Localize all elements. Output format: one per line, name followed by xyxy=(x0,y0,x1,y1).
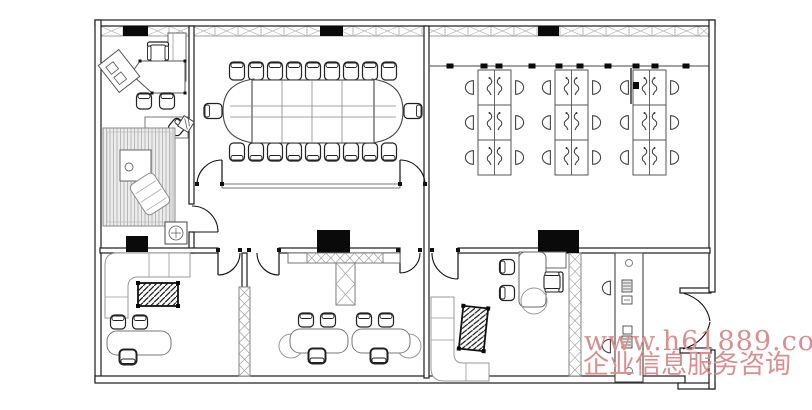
door-posts xyxy=(195,182,199,186)
conference-chair xyxy=(325,143,340,161)
column xyxy=(317,230,350,253)
manager-desk xyxy=(519,252,546,307)
rail-tick xyxy=(529,64,536,69)
coffee-table xyxy=(136,281,180,308)
layer-room-c xyxy=(431,252,566,381)
workstation-chair xyxy=(671,116,679,130)
wall-main-c xyxy=(458,248,710,253)
workstation-chair xyxy=(593,151,601,165)
chair xyxy=(371,349,388,364)
watermark-caption: 企业信息服务咨询 xyxy=(583,352,791,378)
wall-left xyxy=(95,20,101,382)
layer-room-a xyxy=(105,253,190,365)
office-chair xyxy=(148,42,169,61)
conference-chair-end xyxy=(404,104,422,119)
conference-chair xyxy=(363,143,378,161)
workstation-chair xyxy=(465,116,473,130)
conference-chair-end xyxy=(204,104,222,119)
conference-glass-wall xyxy=(222,184,400,188)
wall-conference-right xyxy=(424,26,429,378)
column xyxy=(123,26,148,36)
chair xyxy=(379,313,394,327)
door-posts xyxy=(396,248,400,252)
chair xyxy=(133,315,148,329)
rail-tick xyxy=(556,64,563,69)
workstation-chair xyxy=(671,81,679,95)
rail-tick xyxy=(652,64,659,69)
workstation-chair xyxy=(620,81,628,95)
workstation-chair xyxy=(620,151,628,165)
conference-chair xyxy=(249,62,264,80)
manager-chair xyxy=(544,272,563,292)
table xyxy=(107,331,171,355)
workstation-chair xyxy=(542,151,550,165)
chair xyxy=(500,286,515,301)
conference-chair xyxy=(325,62,340,80)
rail-tick xyxy=(605,64,612,69)
conference-chair xyxy=(249,143,264,161)
conference-chair xyxy=(344,143,359,161)
column xyxy=(538,26,559,36)
door-arc-conference-right xyxy=(400,160,425,185)
rail-tick xyxy=(496,64,503,69)
workstation-chair xyxy=(671,151,679,165)
door-posts xyxy=(216,248,220,252)
guest-chair xyxy=(137,93,152,109)
conference-table xyxy=(252,80,374,143)
rail-tick xyxy=(633,64,640,69)
workstation-chair xyxy=(465,151,473,165)
column xyxy=(320,26,343,36)
conference-chair xyxy=(287,62,302,80)
conference-chair xyxy=(382,143,397,161)
wall-office-right-upper xyxy=(189,26,194,204)
door-posts xyxy=(398,182,402,186)
door-arc-room-b-right xyxy=(400,253,420,273)
entry-door-leaf-top xyxy=(683,293,710,321)
workstation-chair xyxy=(465,81,473,95)
chair xyxy=(120,350,137,365)
divider-room-ab xyxy=(239,287,250,376)
conference-chair xyxy=(230,143,245,161)
wall-main-a xyxy=(100,248,218,253)
layer-executive-office xyxy=(98,33,194,244)
conference-chair xyxy=(306,143,321,161)
conference-chair xyxy=(363,62,378,80)
reception-chair xyxy=(602,281,610,295)
door-arc-room-a xyxy=(218,253,240,275)
desk-cluster xyxy=(542,70,600,175)
desk-cluster xyxy=(465,70,523,175)
door-posts xyxy=(456,248,460,252)
layer-open-office xyxy=(465,68,678,175)
entry-stub-top xyxy=(680,288,711,293)
workstation-chair xyxy=(516,151,524,165)
door-posts xyxy=(247,248,251,252)
file-cabinet xyxy=(98,50,139,93)
conference-table-end xyxy=(223,79,254,143)
divider-post xyxy=(242,253,247,288)
conference-chair xyxy=(287,143,302,161)
conference-table-end xyxy=(372,79,403,143)
door-posts xyxy=(277,248,281,252)
door-posts xyxy=(430,248,434,252)
chair xyxy=(357,313,372,327)
area-rug xyxy=(457,304,491,354)
chair xyxy=(299,313,314,327)
door-arc-office xyxy=(192,206,218,232)
conference-chair xyxy=(344,62,359,80)
conference-chair xyxy=(268,62,283,80)
floor-plan-canvas: www.h61889.com 企业信息服务咨询 xyxy=(0,0,812,410)
chair xyxy=(500,260,515,275)
desk-cluster xyxy=(620,70,678,175)
conference-chair xyxy=(268,143,283,161)
workstation-chair xyxy=(620,116,628,130)
door-posts xyxy=(220,182,224,186)
rail-tick xyxy=(447,64,454,69)
conference-chair xyxy=(382,62,397,80)
workstation-chair xyxy=(593,116,601,130)
door-arc-room-b-left xyxy=(257,253,279,275)
workstation-chair xyxy=(542,81,550,95)
door-arc-room-c xyxy=(432,253,458,279)
conference-chair xyxy=(306,62,321,80)
workstation-chair xyxy=(542,116,550,130)
workstation-chair xyxy=(593,81,601,95)
rail-tick xyxy=(577,64,584,69)
door-posts xyxy=(238,248,242,252)
guest-chair xyxy=(160,93,175,109)
printer xyxy=(633,82,639,89)
chair xyxy=(111,315,126,329)
chair xyxy=(321,313,336,327)
wall-top xyxy=(95,20,715,26)
door-arc-conference-left xyxy=(197,160,222,185)
door-posts xyxy=(423,182,427,186)
chair xyxy=(309,349,326,364)
rail-tick xyxy=(683,64,690,69)
conference-chair xyxy=(230,62,245,80)
column xyxy=(126,236,148,252)
workstation-chair xyxy=(516,81,524,95)
door-posts xyxy=(418,248,422,252)
layer-conference-room xyxy=(204,62,422,161)
rail-tick xyxy=(481,64,488,69)
column xyxy=(538,230,579,253)
workstation-chair xyxy=(516,116,524,130)
